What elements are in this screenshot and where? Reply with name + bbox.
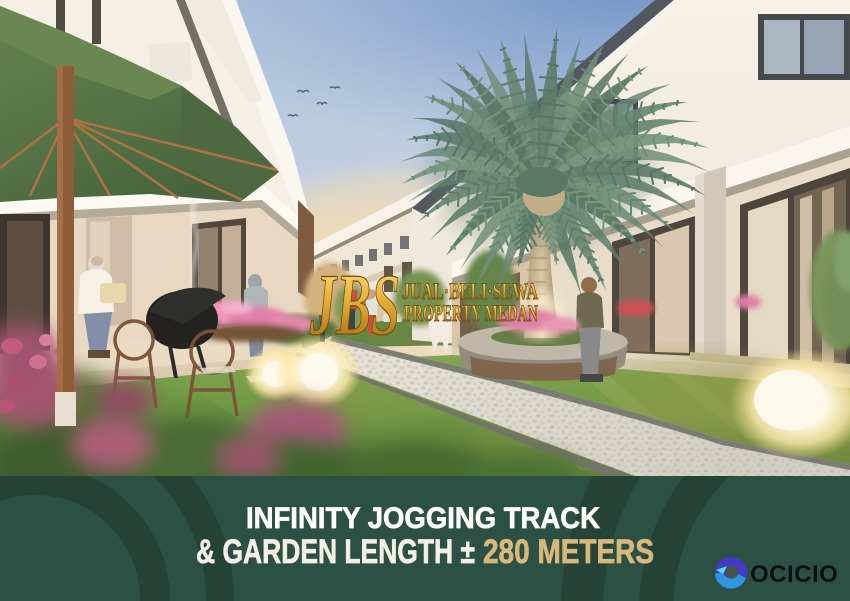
svg-text:& GARDEN LENGTH ±: & GARDEN LENGTH ± <box>196 533 475 571</box>
svg-text:INFINITY JOGGING TRACK: INFINITY JOGGING TRACK <box>246 502 600 535</box>
svg-text:OCICIO: OCICIO <box>750 561 838 588</box>
svg-text:280 METERS: 280 METERS <box>483 533 654 571</box>
svg-text:PROPERTY MEDAN: PROPERTY MEDAN <box>404 301 538 326</box>
svg-text:JBS: JBS <box>309 257 400 354</box>
